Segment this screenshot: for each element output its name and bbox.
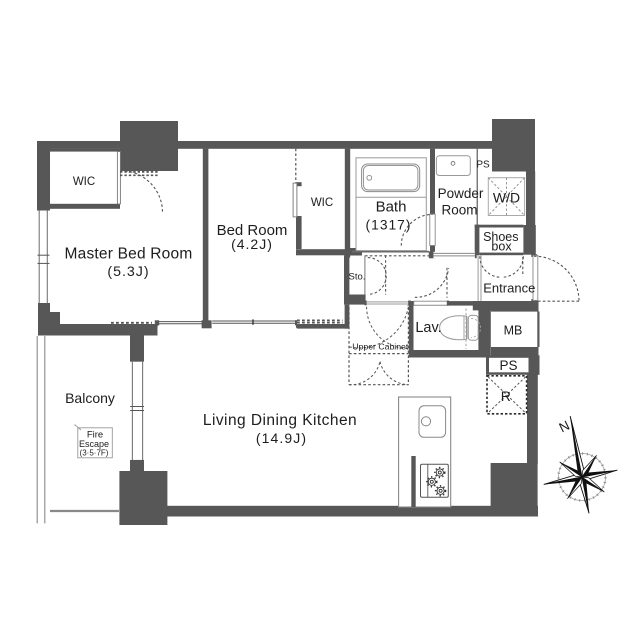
svg-text:(3·5·7F): (3·5·7F) xyxy=(80,449,109,458)
svg-text:MB: MB xyxy=(504,324,523,338)
svg-text:Balcony: Balcony xyxy=(65,390,115,406)
svg-text:Room: Room xyxy=(441,203,477,218)
svg-text:Powder: Powder xyxy=(438,186,484,201)
svg-text:(5.3J): (5.3J) xyxy=(107,264,149,280)
svg-text:W/D: W/D xyxy=(493,190,520,206)
svg-text:R: R xyxy=(501,388,511,404)
svg-text:(4.2J): (4.2J) xyxy=(231,236,273,252)
svg-text:Living Dining Kitchen: Living Dining Kitchen xyxy=(203,412,357,429)
svg-text:Master Bed Room: Master Bed Room xyxy=(65,246,193,263)
svg-text:Entrance: Entrance xyxy=(483,281,535,296)
svg-text:(14.9J): (14.9J) xyxy=(256,430,307,446)
svg-text:PS: PS xyxy=(476,160,490,171)
svg-text:WIC: WIC xyxy=(311,197,333,209)
svg-text:Lav.: Lav. xyxy=(415,320,441,336)
svg-text:(1317): (1317) xyxy=(366,218,412,233)
svg-text:box: box xyxy=(491,240,512,254)
svg-text:Escape: Escape xyxy=(79,439,109,449)
svg-text:Upper Cabinet: Upper Cabinet xyxy=(352,342,409,352)
svg-text:PS: PS xyxy=(499,358,517,373)
svg-text:WIC: WIC xyxy=(73,176,95,188)
svg-text:Bath: Bath xyxy=(376,199,407,216)
svg-text:Sto.: Sto. xyxy=(349,272,366,283)
